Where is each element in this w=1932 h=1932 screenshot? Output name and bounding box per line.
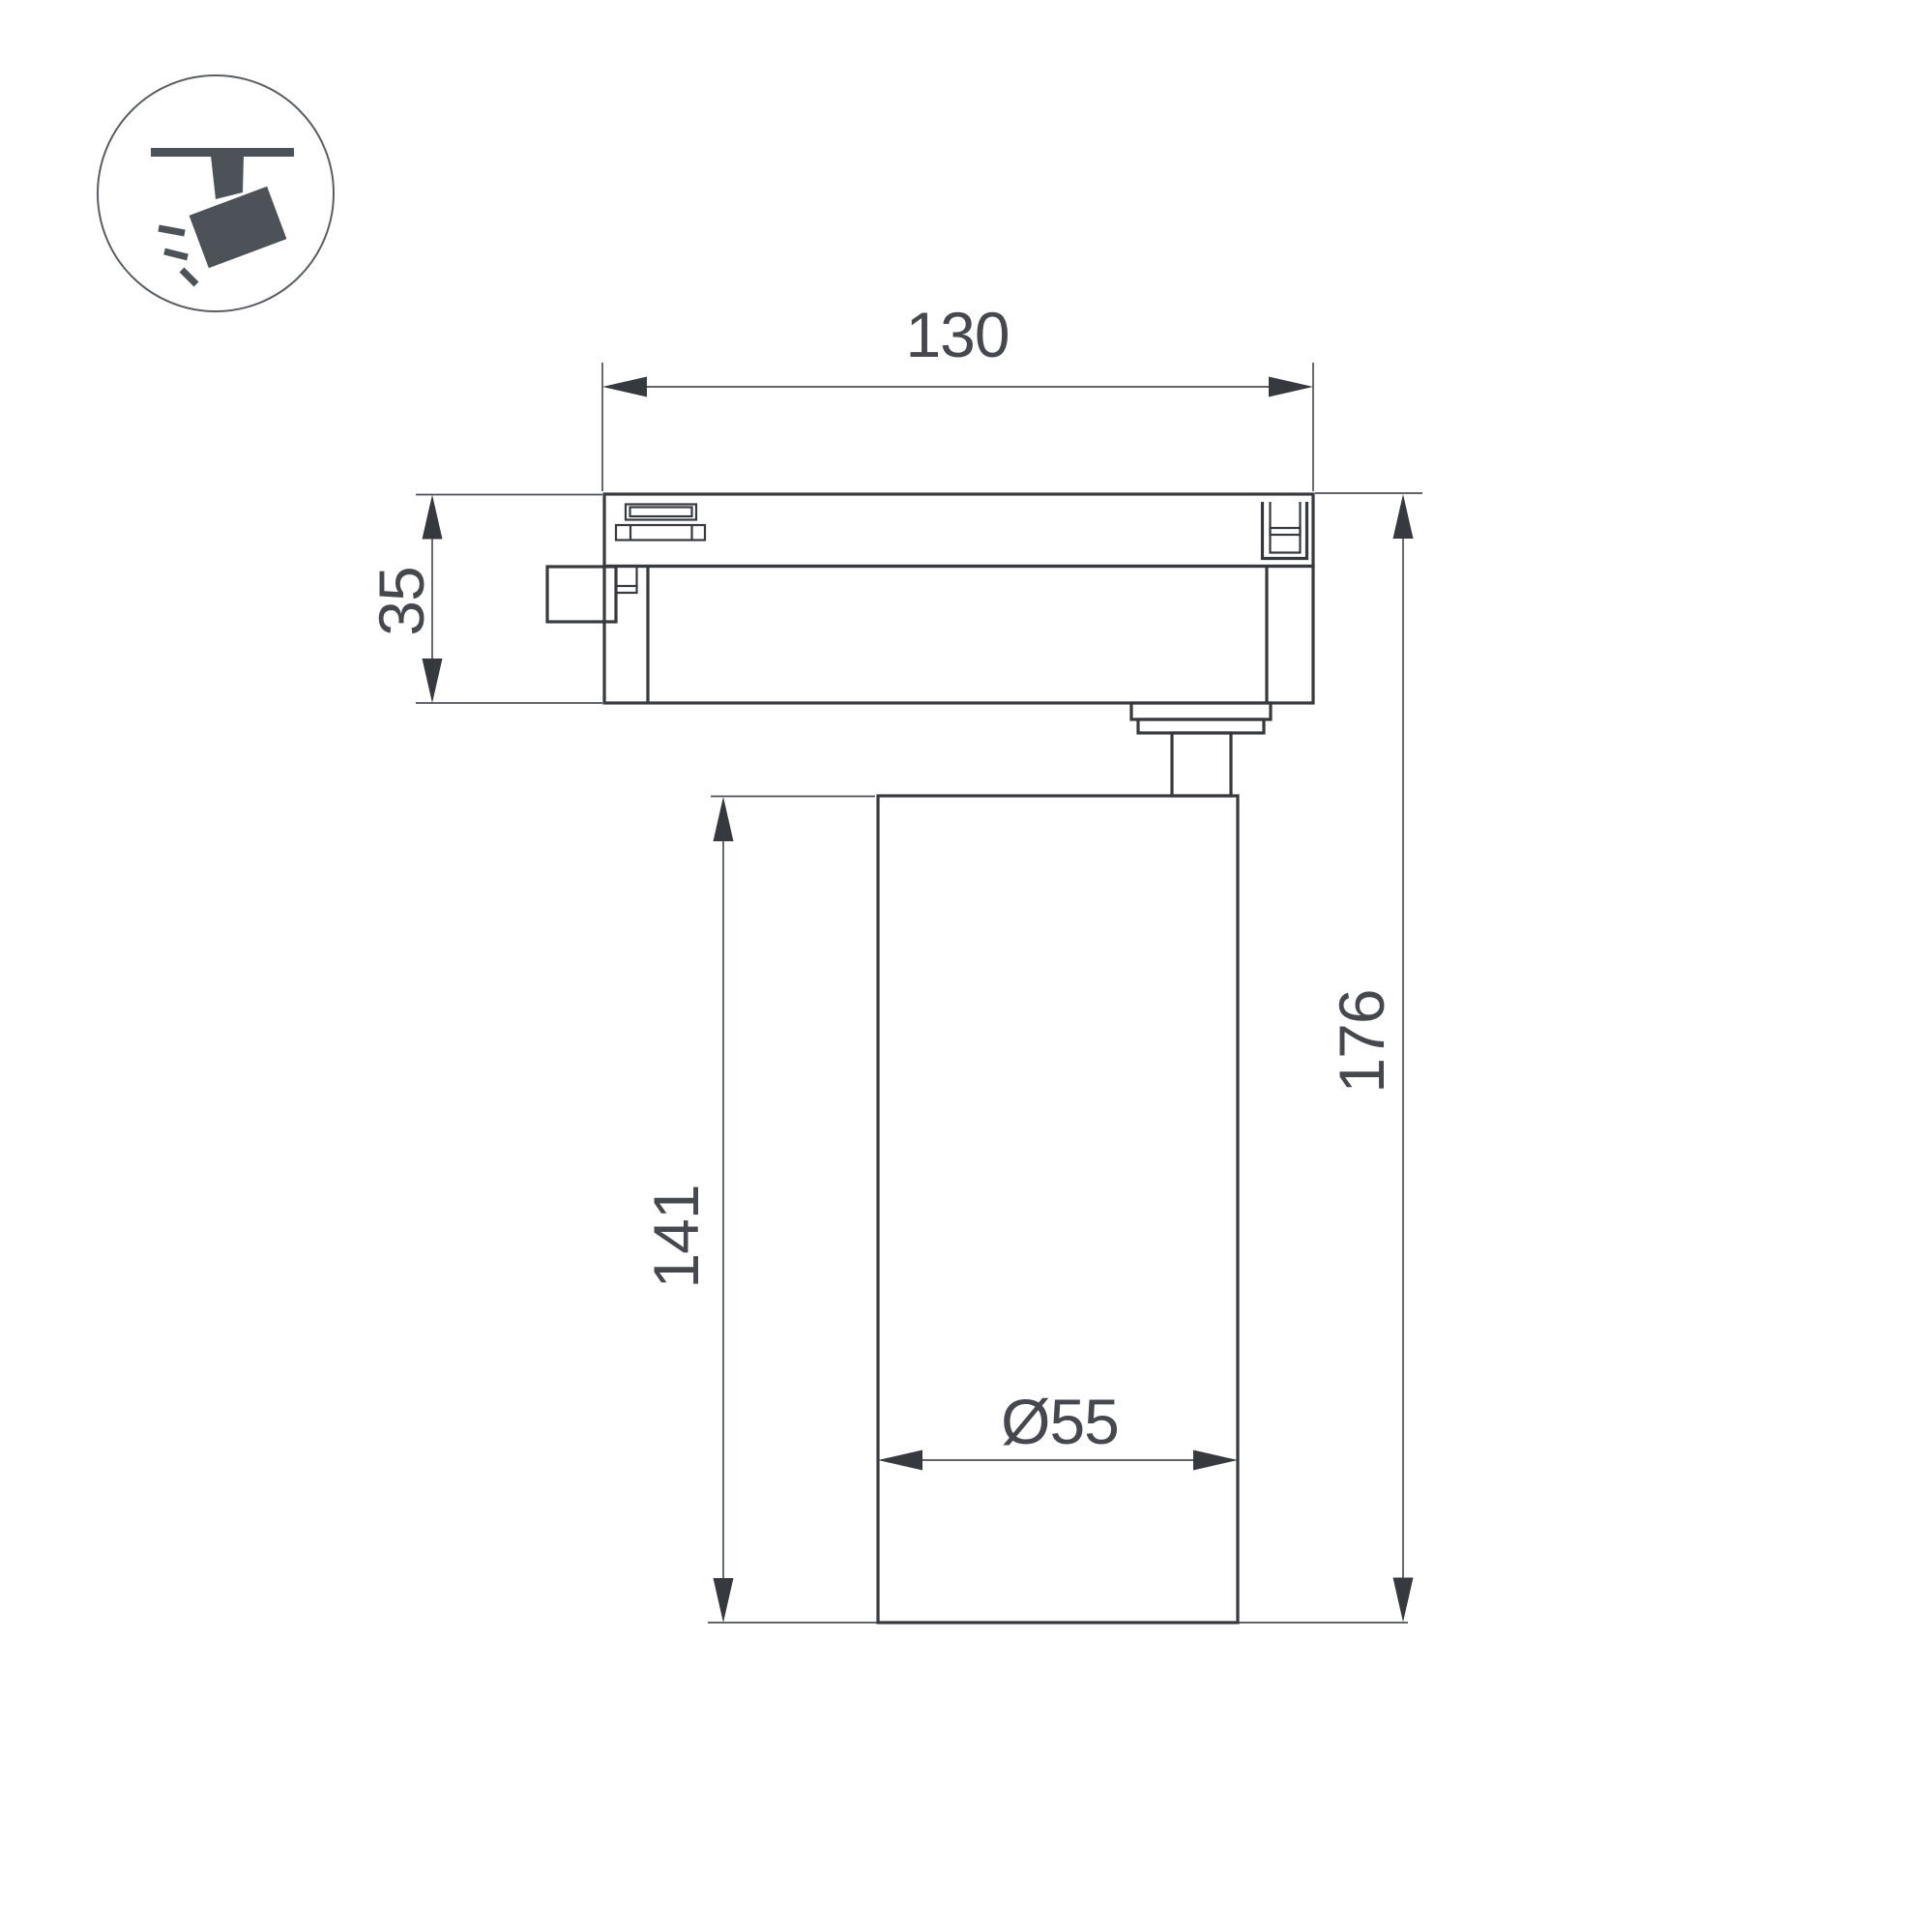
dimension-body-diameter: Ø55 xyxy=(878,1386,1238,1471)
arrowhead-left-icon xyxy=(878,1450,922,1471)
arrowhead-down-icon xyxy=(423,659,443,703)
adapter-upper-section xyxy=(604,494,1313,567)
adapter-latch-notch xyxy=(616,586,637,593)
collar-step-2 xyxy=(1138,719,1264,733)
track-spotlight-icon xyxy=(98,75,334,311)
dimension-label-body-height: 141 xyxy=(640,1185,712,1288)
stem xyxy=(1172,733,1231,796)
icon-track-bar xyxy=(151,148,294,157)
icon-lamp-body xyxy=(190,187,287,268)
arrowhead-up-icon xyxy=(714,797,734,841)
collar-step-1 xyxy=(1131,703,1271,719)
adapter-socket-crossbar xyxy=(1271,528,1301,535)
arrowhead-up-icon xyxy=(1393,494,1414,539)
arrowhead-down-icon xyxy=(714,1578,734,1623)
dimension-total-height: 176 xyxy=(1315,493,1422,1623)
arrowhead-right-icon xyxy=(1193,1450,1238,1471)
adapter-contact-clip-inner xyxy=(630,508,692,517)
adapter-lower-section xyxy=(604,567,1313,704)
dimension-label-track-width: 130 xyxy=(905,299,1009,370)
dimension-track-width: 130 xyxy=(602,299,1313,491)
icon-light-ray xyxy=(164,251,188,257)
arrowhead-left-icon xyxy=(602,377,647,397)
dimension-label-total-height: 176 xyxy=(1326,989,1397,1093)
drawing-canvas: 130 35 141 176 xyxy=(0,0,1932,1932)
icon-light-ray xyxy=(182,270,196,284)
dimension-label-body-diameter: Ø55 xyxy=(1001,1386,1119,1457)
arrowhead-right-icon xyxy=(1269,377,1313,397)
arrowhead-up-icon xyxy=(423,495,443,540)
dimension-body-height: 141 xyxy=(640,797,875,1624)
dimension-label-adapter-height: 35 xyxy=(366,567,437,635)
swivel-joint xyxy=(1131,703,1271,796)
dimension-adapter-height: 35 xyxy=(366,495,602,704)
icon-light-ray xyxy=(159,228,185,233)
lamp-cylinder-body xyxy=(878,796,1238,1623)
arrowhead-down-icon xyxy=(1393,1578,1414,1623)
icon-lamp-stem xyxy=(211,156,244,199)
technical-drawing: 130 35 141 176 xyxy=(0,0,1932,1932)
track-adapter-outline xyxy=(547,494,1313,703)
